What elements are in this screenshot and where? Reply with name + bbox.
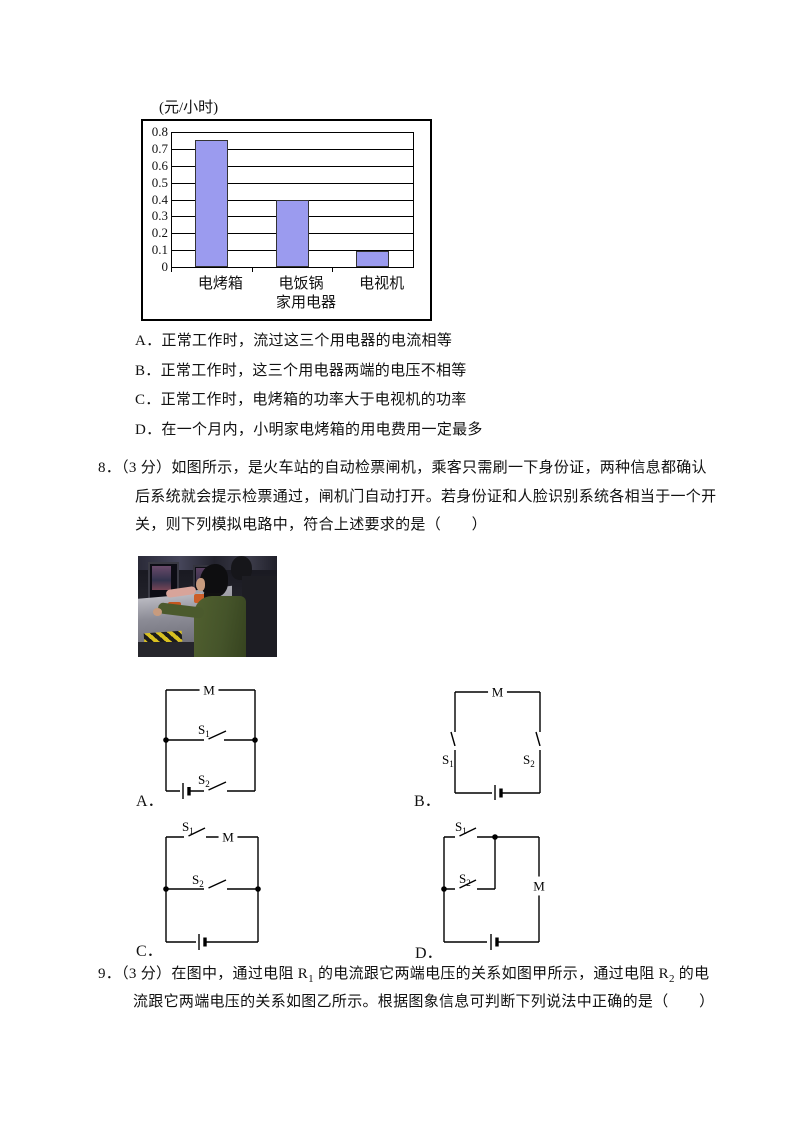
q7-option-c: C．正常工作时，电烤箱的功率大于电视机的功率 [135, 391, 467, 409]
other-passenger-body [242, 576, 277, 657]
y-axis-line [171, 132, 172, 272]
switch-s1-label: S1 [198, 722, 210, 739]
circuit-a-diagram: M S1 S2 [160, 680, 265, 800]
y-tick-label: 0.3 [143, 208, 168, 223]
switch-s2-label: S2 [523, 752, 535, 769]
switch-s2-label: S2 [192, 872, 204, 889]
y-tick-label: 0.1 [143, 242, 168, 257]
circuit-option-a-label: A． [136, 787, 164, 811]
y-tick-label: 0.2 [143, 225, 168, 240]
bar [195, 140, 228, 267]
bar-chart: 00.10.20.30.40.50.60.70.8电烤箱电饭锅电视机家用电器 [141, 119, 432, 321]
bar [276, 200, 309, 268]
x-category-label: 电烤箱 [180, 272, 261, 293]
passenger-coat [194, 596, 246, 657]
x-axis-line [171, 267, 413, 268]
circuit-c-diagram: M S1 S2 [160, 818, 265, 952]
bar [356, 251, 389, 267]
switch-s2-label: S2 [459, 871, 471, 888]
q7-option-d: D．在一个月内，小明家电烤箱的用电费用一定最多 [135, 421, 483, 439]
circuit-option-d-label: D． [415, 939, 443, 963]
ticket-gate-photo [138, 556, 277, 657]
passenger-hand [153, 608, 162, 616]
gate-base-panel [138, 642, 200, 657]
circuit-option-c-label: C． [136, 937, 163, 961]
motor-label: M [203, 683, 215, 698]
y-tick-label: 0.7 [143, 141, 168, 156]
x-tick [332, 268, 333, 272]
switch-s1-label: S1 [442, 752, 454, 769]
gridline [171, 132, 413, 133]
exam-page: (元/小时) 00.10.20.30.40.50.60.70.8电烤箱电饭锅电视… [0, 0, 794, 1123]
chart-title: (元/小时) [159, 96, 218, 117]
y-tick-label: 0 [143, 259, 168, 274]
circuit-b-diagram: M S1 S2 [440, 680, 552, 800]
circuit-d-diagram: M S1 S2 [435, 818, 547, 952]
circuit-option-b-label: B． [414, 787, 441, 811]
x-category-label: 电视机 [341, 272, 422, 293]
motor-label: M [533, 879, 545, 894]
plot-right-border [413, 132, 414, 268]
motor-label: M [222, 830, 234, 845]
motor-label: M [492, 685, 504, 700]
switch-s1-label: S1 [455, 819, 467, 836]
x-tick [252, 268, 253, 272]
q8-text-line3: 关，则下列模拟电路中，符合上述要求的是（ ） [135, 516, 487, 534]
gate-screen-content [152, 566, 171, 590]
q9-text-line2: 流跟它两端电压的关系如图乙所示。根据图象信息可判断下列说法中正确的是（ ） [133, 993, 714, 1011]
q9-text-line1: 9．（3 分）在图中，通过电阻 R1 的电流跟它两端电压的关系如图甲所示，通过电… [98, 965, 709, 988]
switch-s2-label: S2 [198, 772, 210, 789]
q7-option-a: A．正常工作时，流过这三个用电器的电流相等 [135, 332, 452, 350]
switch-s1-label: S1 [182, 819, 194, 836]
y-tick-label: 0.5 [143, 175, 168, 190]
x-category-label: 电饭锅 [261, 272, 342, 293]
q7-option-b: B．正常工作时，这三个用电器两端的电压不相等 [135, 362, 467, 380]
y-tick-label: 0.6 [143, 158, 168, 173]
x-axis-title: 家用电器 [185, 291, 427, 312]
y-tick-label: 0.8 [143, 124, 168, 139]
q8-text-line1: 8．（3 分）如图所示，是火车站的自动检票闸机，乘客只需刷一下身份证，两种信息都… [98, 459, 707, 477]
q8-text-line2: 后系统就会提示检票通过，闸机门自动打开。若身份证和人脸识别系统各相当于一个开 [135, 488, 716, 506]
passenger-face [196, 578, 205, 591]
y-tick-label: 0.4 [143, 192, 168, 207]
